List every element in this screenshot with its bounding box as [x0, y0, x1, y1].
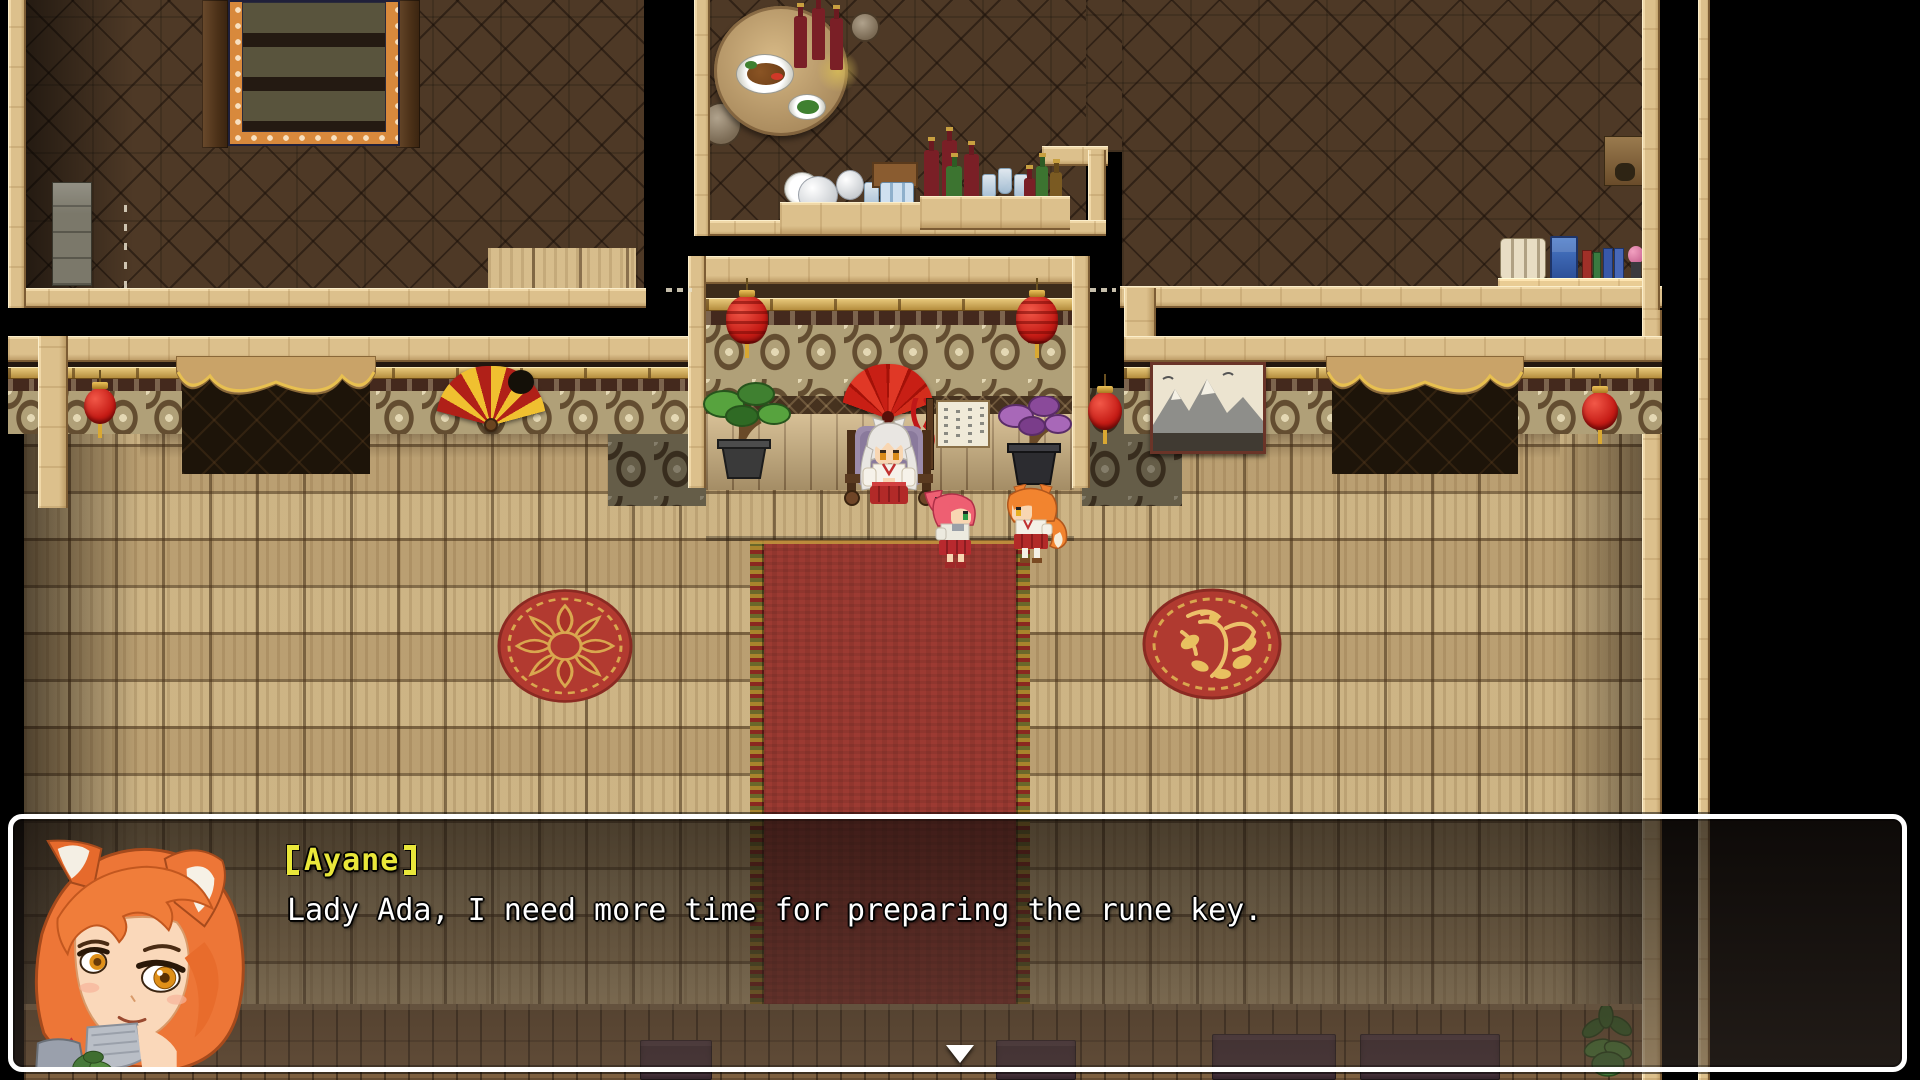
alcove-header	[706, 282, 1074, 298]
book-row	[1582, 244, 1628, 282]
right-doorway[interactable]	[1326, 356, 1524, 474]
blue-book-box	[1550, 236, 1578, 282]
glassware-counter	[920, 138, 1070, 198]
banner-emblem	[1615, 163, 1635, 181]
tile-mark	[666, 288, 692, 292]
greens	[745, 61, 757, 69]
stair-runner-rug	[228, 0, 400, 146]
food-plate	[736, 54, 794, 94]
fan-pivot	[484, 418, 498, 432]
white-jar	[836, 170, 864, 200]
lantern-tassel	[1035, 344, 1039, 358]
hall-corner-post-left	[38, 336, 68, 508]
red-lantern-icon	[1016, 296, 1058, 344]
counter-right	[920, 196, 1070, 230]
tile-mark	[124, 200, 127, 288]
lotus-round-rug	[497, 589, 633, 703]
lantern-tassel	[1598, 430, 1602, 444]
lantern-tassel	[1103, 430, 1107, 444]
purple-bonsai	[994, 396, 1074, 486]
upper-left-room-wall-bottom	[8, 288, 646, 308]
tea-set-counter	[782, 160, 920, 204]
stair-runner-center	[242, 2, 386, 132]
fan-marking	[508, 370, 534, 394]
wine-bottle	[812, 8, 825, 60]
door-curtain	[176, 356, 376, 408]
scroll-stack	[1500, 238, 1546, 280]
pink-haired-character[interactable]	[921, 490, 987, 570]
alcove-beam	[688, 256, 1090, 284]
lantern-tassel	[98, 424, 102, 438]
wine-bottle	[830, 18, 843, 70]
red-lantern-icon	[726, 296, 768, 344]
painting-canvas	[1153, 365, 1263, 451]
lantern-cap	[739, 290, 755, 297]
name-bracket-close-icon	[404, 845, 416, 875]
lantern-tassel	[745, 344, 749, 358]
blue-book	[1603, 248, 1613, 282]
board-writing	[944, 407, 948, 443]
stair-pillar-left	[202, 0, 228, 148]
green-bonsai	[698, 382, 794, 484]
lantern-cap	[1029, 290, 1045, 297]
dialogue-text: Lady Ada, I need more time for preparing…	[287, 893, 1262, 928]
notice-board[interactable]	[926, 396, 992, 472]
lantern-cap	[92, 382, 108, 389]
left-doorway[interactable]	[176, 356, 376, 474]
phoenix-round-rug	[1142, 588, 1282, 700]
red-lantern-icon	[1582, 392, 1618, 430]
stool	[850, 12, 880, 42]
door-curtain	[1326, 356, 1524, 408]
continue-indicator-icon[interactable]	[946, 1045, 974, 1063]
red-lantern-icon	[84, 388, 116, 424]
speaker-name-row: Ayane	[287, 843, 416, 883]
tile-mark	[1090, 288, 1116, 292]
ayane-portrait	[27, 839, 255, 1072]
upper-right-room-wall-bottom	[1120, 286, 1662, 308]
goblet	[998, 168, 1012, 194]
board-writing	[968, 407, 972, 443]
name-bracket-open-icon	[287, 845, 299, 875]
counter-left	[780, 202, 920, 236]
garnish	[771, 73, 783, 80]
salad	[797, 100, 819, 114]
board-writing	[956, 407, 960, 437]
upper-left-room-wall-left	[8, 0, 26, 308]
upper-right-room-wall-right	[1642, 0, 1660, 310]
salad-plate	[788, 94, 826, 120]
message-window[interactable]: Ayane Lady Ada, I need more time for pre…	[8, 814, 1907, 1072]
speaker-name: Ayane	[304, 843, 399, 878]
orange-haired-character[interactable]	[1000, 484, 1072, 570]
blue-book	[1614, 248, 1624, 282]
board-paper	[936, 400, 990, 448]
cabinet	[52, 182, 92, 286]
wine-bottle	[794, 16, 807, 68]
wall-banner	[1604, 136, 1646, 186]
lantern-cap	[1592, 386, 1608, 393]
lantern-cap	[1097, 386, 1113, 393]
room-connector-floor	[1086, 0, 1124, 152]
pot	[1631, 262, 1641, 278]
alcove-post-right	[1072, 256, 1090, 488]
game-viewport[interactable]: Ayane Lady Ada, I need more time for pre…	[0, 0, 1920, 1080]
upper-middle-room-wall-left	[694, 0, 710, 236]
ink-landscape-painting	[1150, 362, 1266, 454]
red-lantern-icon	[1088, 392, 1122, 430]
doorway-floor-patch	[488, 248, 636, 290]
board-writing	[980, 407, 984, 433]
